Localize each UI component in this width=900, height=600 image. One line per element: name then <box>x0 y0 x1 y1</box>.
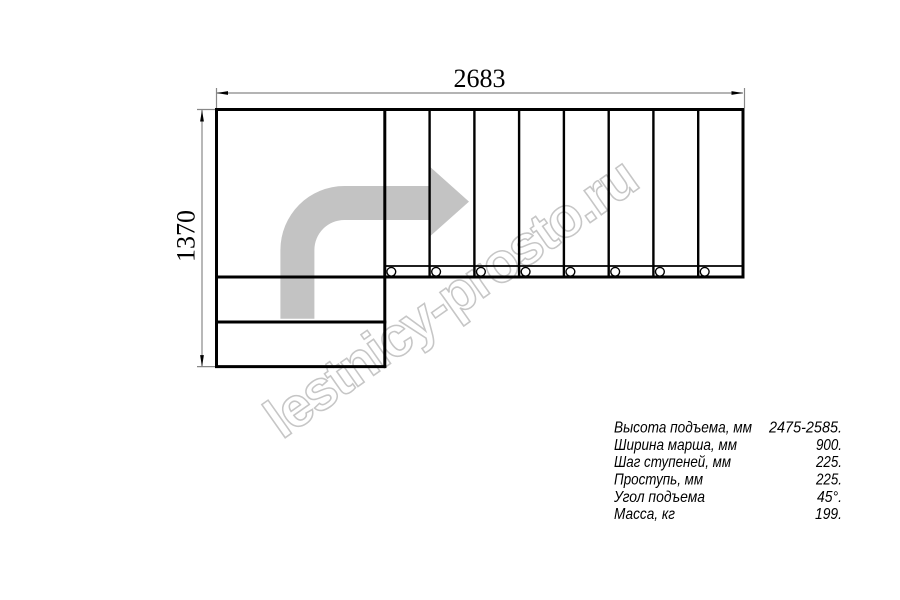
svg-text:199.: 199. <box>815 506 842 523</box>
svg-text:225.: 225. <box>815 454 842 471</box>
svg-text:1370: 1370 <box>172 210 201 262</box>
svg-text:225.: 225. <box>815 471 842 488</box>
svg-text:900.: 900. <box>816 437 842 454</box>
svg-text:Ширина марша, мм: Ширина марша, мм <box>614 437 737 454</box>
svg-text:Масса, кг: Масса, кг <box>614 506 675 523</box>
svg-text:Угол подъема: Угол подъема <box>613 489 705 506</box>
svg-text:Шаг ступеней, мм: Шаг ступеней, мм <box>614 454 731 471</box>
svg-text:2683: 2683 <box>454 64 506 93</box>
svg-text:Проступь, мм: Проступь, мм <box>614 471 703 488</box>
svg-text:Высота подъема, мм: Высота подъема, мм <box>614 419 752 436</box>
svg-text:2475-2585.: 2475-2585. <box>768 419 842 436</box>
svg-text:45°.: 45°. <box>817 489 842 506</box>
